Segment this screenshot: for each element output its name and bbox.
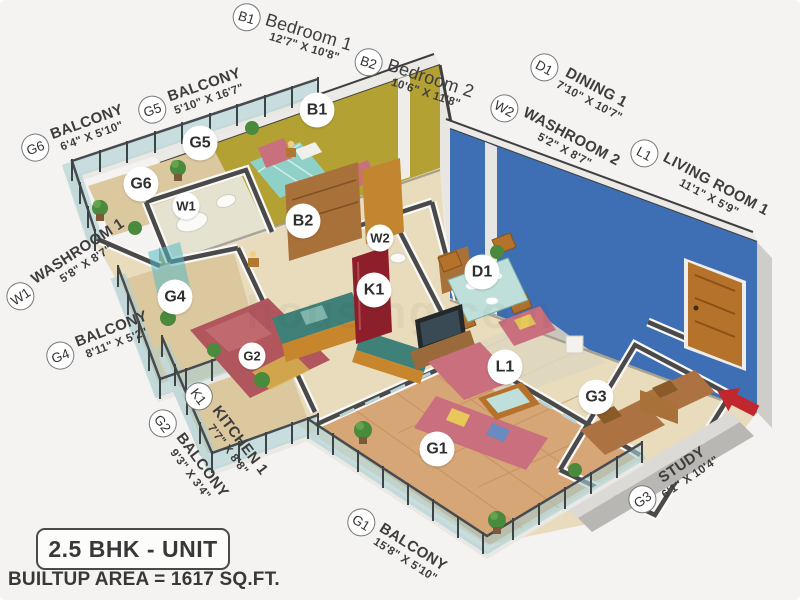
room-badge-w1: W1 [173, 193, 200, 220]
room-badge-d1: D1 [465, 255, 500, 290]
builtup-area-label: BUILTUP AREA = 1617 SQ.FT. [8, 569, 280, 591]
room-badge-g4: G4 [158, 280, 193, 315]
room-badge-g3: G3 [579, 380, 614, 415]
room-badge-b2: B2 [286, 204, 321, 239]
floor-plan-page: housing.com [0, 0, 800, 600]
watermark: housing.com [246, 285, 554, 339]
room-badge-g5: G5 [183, 126, 218, 161]
room-badge-g1: G1 [420, 432, 455, 467]
room-badge-g2: G2 [239, 343, 266, 370]
room-badge-k1: K1 [357, 273, 392, 308]
room-badge-g6: G6 [124, 167, 159, 202]
floor-lamp [566, 336, 583, 353]
room-badge-w2: W2 [367, 225, 394, 252]
door-handle [694, 306, 699, 311]
room-badge-b1: B1 [300, 93, 335, 128]
room-badge-l1: L1 [488, 350, 523, 385]
unit-type-label: 2.5 BHK - UNIT [36, 528, 230, 570]
